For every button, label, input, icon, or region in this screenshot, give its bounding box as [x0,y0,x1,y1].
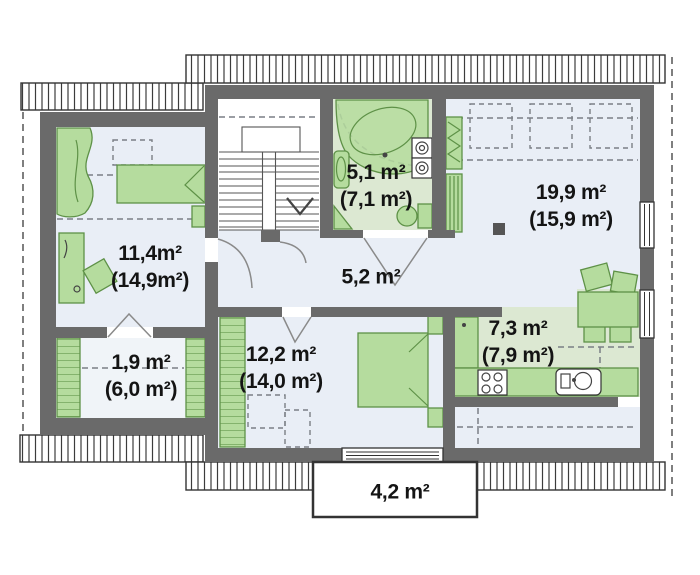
room-area-total: (14,0 m²) [239,368,323,395]
floor-plan-page: 11,4m² (14,9m²) 1,9 m² (6,0 m²) 5,1 m² (… [0,0,700,575]
desk [59,233,84,303]
roof-hatch-top-right [186,55,665,83]
room-area-total: (7,9 m²) [482,342,554,369]
room-label-balcony: 4,2 m² [371,479,430,506]
room-area-total: (7,1 m²) [340,186,412,213]
floor-hallway [218,230,455,307]
floor-staircase [218,99,320,230]
nightstand [428,408,443,427]
room-label-wardrobe-room: 1,9 m² (6,0 m²) [105,349,177,403]
room-area-total: (14,9m²) [111,267,189,294]
toilet-tank [418,204,432,228]
room-area: 12,2 m² [239,341,323,368]
room-area: 5,2 m² [342,264,401,291]
room-area: 1,9 m² [105,349,177,376]
room-label-bedroom-main: 12,2 m² (14,0 m²) [239,341,323,395]
room-label-living-room: 19,9 m² (15,9 m²) [529,179,613,233]
room-area: 11,4m² [111,240,189,267]
chimney [493,223,505,235]
nightstand [192,206,205,227]
roof-hatch-bottom-left [20,435,203,462]
room-area-total: (6,0 m²) [105,376,177,403]
room-area: 19,9 m² [529,179,613,206]
room-area: 7,3 m² [482,315,554,342]
room-label-hallway: 5,2 m² [342,264,401,291]
dryer [412,158,432,178]
room-label-bathroom: 5,1 m² (7,1 m²) [340,159,412,213]
washer [412,138,432,158]
roof-hatch-top-left [21,83,203,110]
roof-hatch-bottom-right [477,462,665,490]
room-area: 5,1 m² [340,159,412,186]
dining-table [578,292,638,327]
kitchen-sink [556,369,601,395]
room-label-kitchen: 7,3 m² (7,9 m²) [482,315,554,369]
window-living [640,202,654,248]
roof-hatch-bottom-middle [186,462,313,490]
window-kitchen [640,290,654,338]
single-bed [117,165,205,203]
room-area: 4,2 m² [371,479,430,506]
room-area-total: (15,9 m²) [529,206,613,233]
room-label-bedroom-left: 11,4m² (14,9m²) [111,240,189,294]
